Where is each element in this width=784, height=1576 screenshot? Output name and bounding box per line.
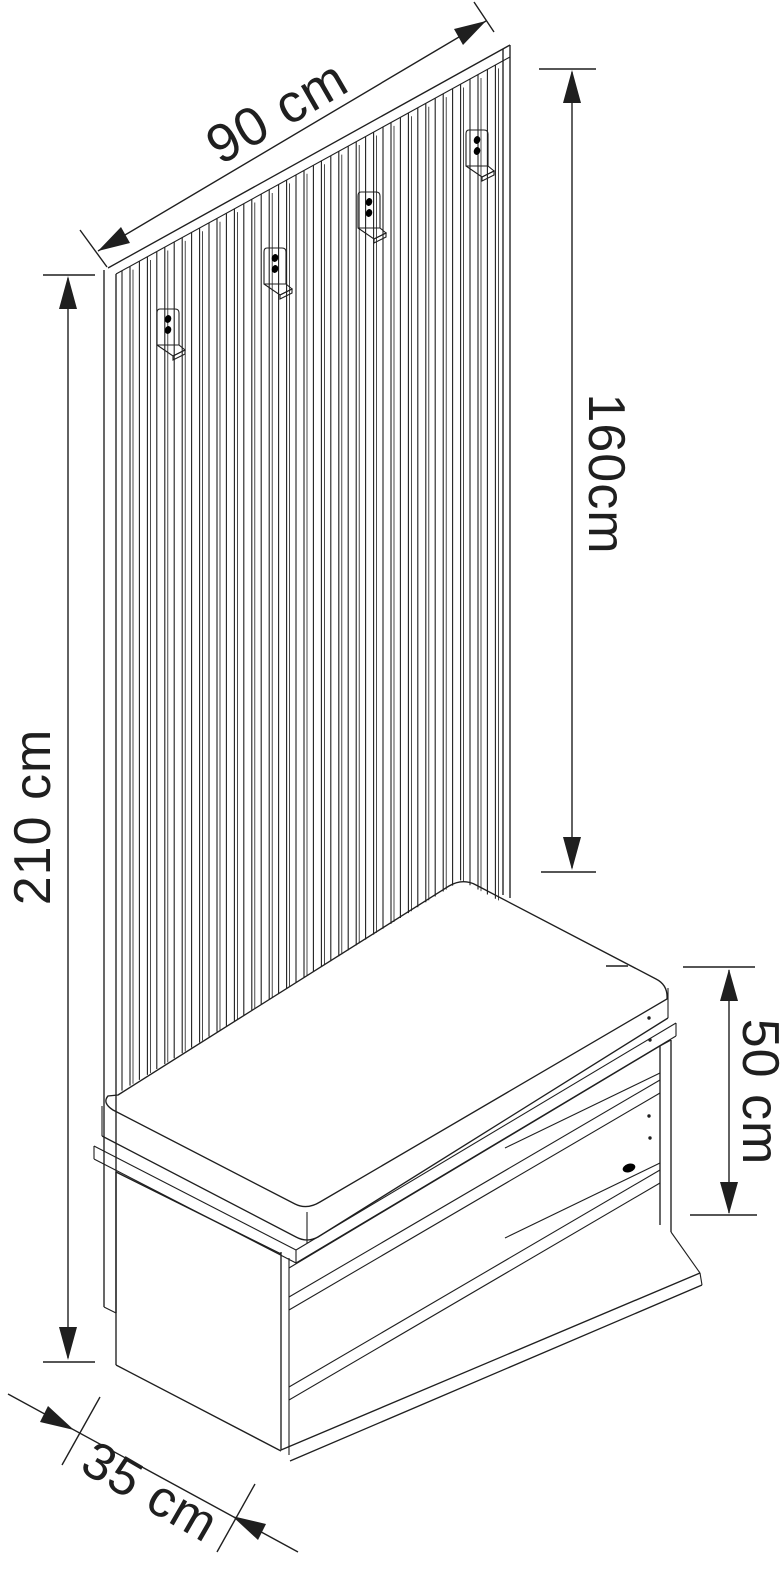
slat-panel [104, 45, 510, 1313]
cam-lock-hole [622, 1162, 637, 1174]
arrowhead-down [720, 1182, 738, 1214]
bench-depth-label: 35 cm [72, 1430, 228, 1554]
panel-height-label: 160cm [577, 393, 635, 554]
dimension-bench-depth: 35 cm [8, 1394, 298, 1554]
arrowhead-inward-left [40, 1406, 74, 1430]
arrowhead-up [563, 70, 581, 103]
furniture-technical-drawing: 90 cm 160cm 210 cm 50 cm 35 cm [0, 0, 784, 1576]
shoe-cabinet [116, 1016, 702, 1461]
dimension-bench-height: 50 cm [606, 966, 784, 1215]
total-height-label: 210 cm [4, 729, 62, 906]
bench-height-label: 50 cm [731, 1019, 784, 1166]
arrowhead-down [563, 837, 581, 870]
coat-hook-1 [157, 309, 185, 360]
coat-hook-3 [358, 192, 386, 243]
arrowhead-down [59, 1327, 77, 1360]
dimension-total-height: 210 cm [4, 275, 95, 1362]
arrowhead-up [59, 276, 77, 309]
bench-cushion [102, 882, 668, 1243]
panel-slats [122, 65, 498, 1091]
coat-hook-2 [264, 248, 292, 299]
panel-width-label: 90 cm [196, 48, 358, 176]
arrowhead-left [98, 227, 130, 251]
dimension-panel-height: 160cm [539, 69, 635, 872]
bottom-shelf [289, 1163, 660, 1400]
arrowhead-inward-right [232, 1516, 266, 1540]
bench-top-board [94, 1023, 676, 1263]
arrowhead-up [720, 969, 738, 1001]
arrowhead-right [454, 21, 486, 45]
middle-shelf [289, 1073, 660, 1310]
